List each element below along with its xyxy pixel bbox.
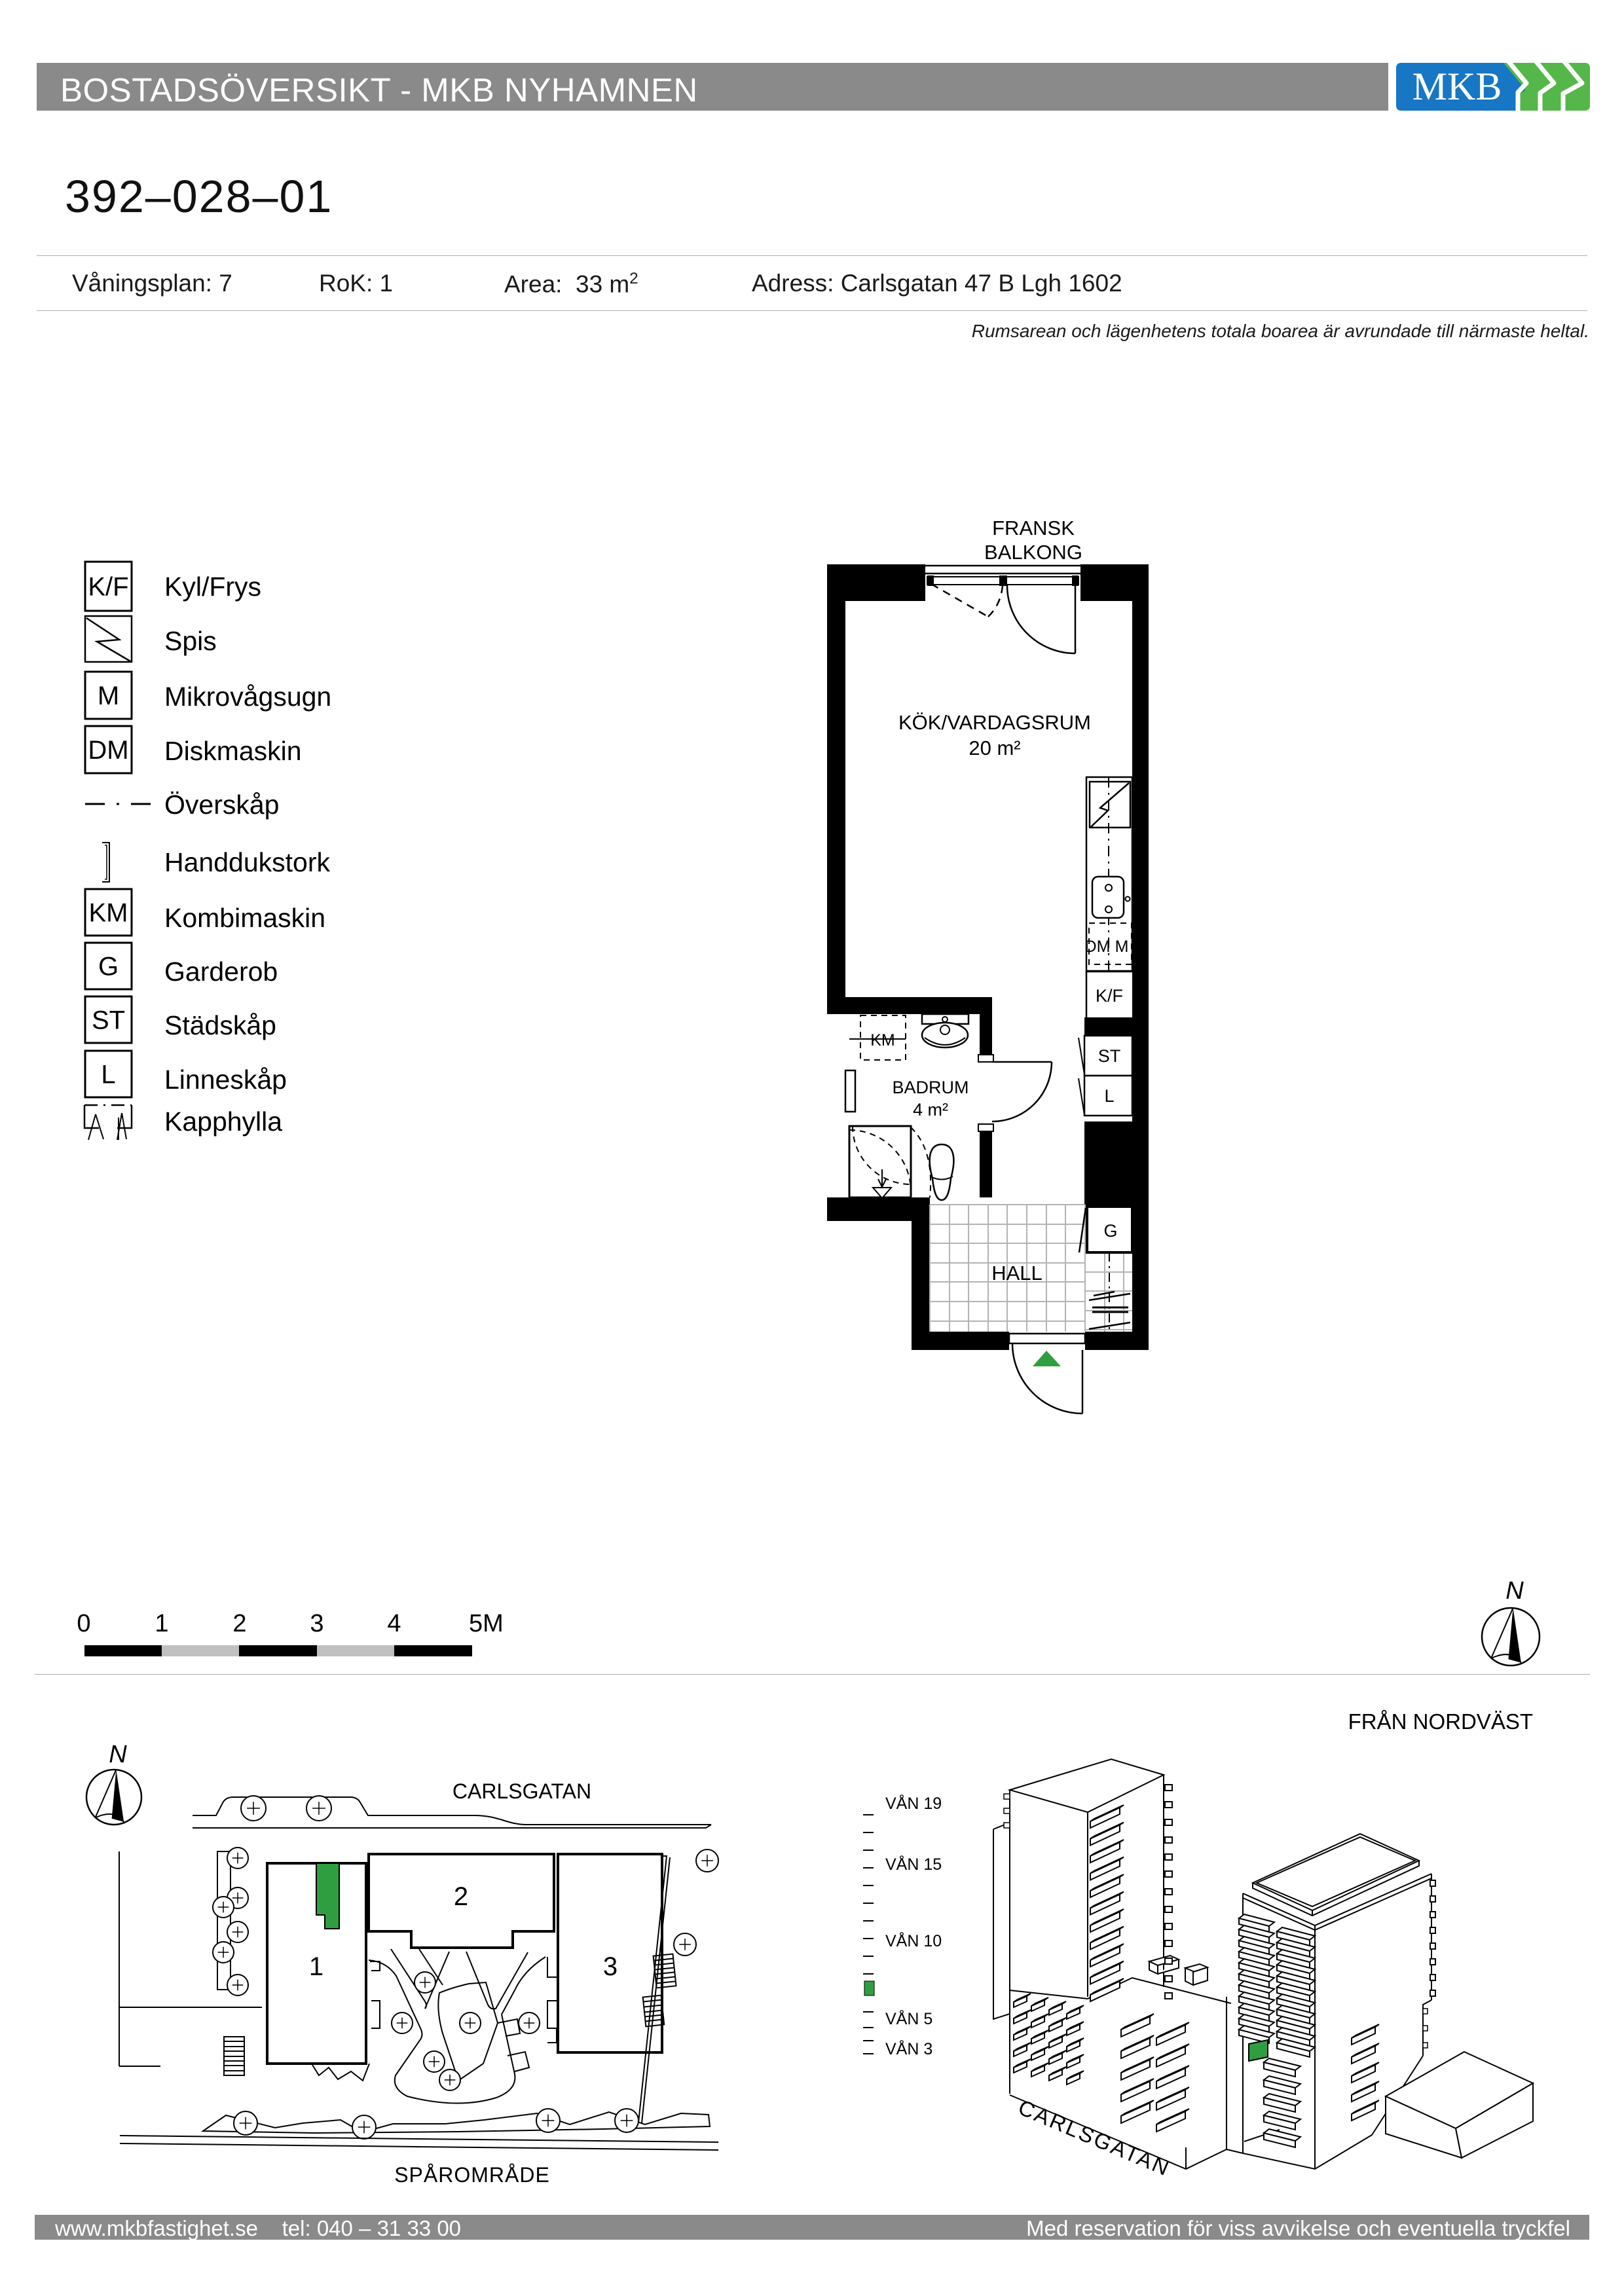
svg-text:20 m²: 20 m² xyxy=(969,737,1020,759)
svg-text:BADRUM: BADRUM xyxy=(892,1078,969,1097)
svg-text:5M: 5M xyxy=(469,1610,504,1637)
svg-text:FRANSK: FRANSK xyxy=(992,517,1075,539)
svg-text:Diskmaskin: Diskmaskin xyxy=(164,736,302,766)
svg-text:KM: KM xyxy=(870,1031,895,1049)
svg-text:N: N xyxy=(109,1741,127,1768)
svg-text:K/F: K/F xyxy=(1096,986,1123,1006)
svg-text:Överskåp: Överskåp xyxy=(164,790,279,820)
svg-text:KM: KM xyxy=(89,899,128,928)
svg-text:K/F: K/F xyxy=(88,573,128,602)
svg-text:VÅN 19: VÅN 19 xyxy=(885,1793,942,1813)
svg-text:G: G xyxy=(1103,1221,1117,1241)
svg-text:4: 4 xyxy=(387,1610,401,1637)
svg-text:CARLSGATAN: CARLSGATAN xyxy=(452,1779,591,1803)
svg-text:Handdukstork: Handdukstork xyxy=(164,847,330,877)
svg-text:Garderob: Garderob xyxy=(164,957,278,987)
svg-text:G: G xyxy=(98,953,119,981)
svg-text:Kapphylla: Kapphylla xyxy=(164,1106,282,1137)
svg-text:Kombimaskin: Kombimaskin xyxy=(164,903,325,933)
svg-text:HALL: HALL xyxy=(991,1262,1043,1285)
svg-text:FRÅN NORDVÄST: FRÅN NORDVÄST xyxy=(1348,1709,1533,1734)
svg-text:ST: ST xyxy=(1098,1046,1121,1066)
svg-text:VÅN 15: VÅN 15 xyxy=(885,1854,942,1874)
svg-text:2: 2 xyxy=(454,1882,468,1911)
svg-text:1: 1 xyxy=(309,1952,323,1981)
svg-text:Städskåp: Städskåp xyxy=(164,1010,276,1040)
svg-text:4 m²: 4 m² xyxy=(913,1100,948,1120)
svg-text:Spis: Spis xyxy=(164,626,217,656)
svg-text:0: 0 xyxy=(77,1610,90,1637)
svg-text:1: 1 xyxy=(155,1610,168,1637)
svg-text:SPÅROMRÅDE: SPÅROMRÅDE xyxy=(394,2163,550,2187)
svg-text:N: N xyxy=(1505,1577,1524,1605)
svg-text:Mikrovågsugn: Mikrovågsugn xyxy=(164,682,331,712)
svg-text:M: M xyxy=(1115,938,1129,956)
svg-text:ST: ST xyxy=(92,1006,125,1035)
svg-text:Kyl/Frys: Kyl/Frys xyxy=(164,572,261,602)
svg-text:KÖK/VARDAGSRUM: KÖK/VARDAGSRUM xyxy=(898,711,1091,734)
svg-text:3: 3 xyxy=(310,1610,323,1637)
svg-text:DM: DM xyxy=(88,736,128,765)
svg-text:L: L xyxy=(1104,1086,1114,1106)
svg-text:VÅN 5: VÅN 5 xyxy=(885,2009,932,2028)
svg-text:M: M xyxy=(98,682,119,710)
svg-text:DM: DM xyxy=(1085,938,1111,956)
svg-text:2: 2 xyxy=(232,1610,246,1637)
svg-text:3: 3 xyxy=(603,1952,618,1981)
svg-text:VÅN 10: VÅN 10 xyxy=(885,1931,942,1950)
svg-text:VÅN 3: VÅN 3 xyxy=(885,2039,932,2058)
svg-text:BALKONG: BALKONG xyxy=(984,541,1082,564)
svg-text:L: L xyxy=(101,1061,115,1089)
svg-text:Linneskåp: Linneskåp xyxy=(164,1065,287,1095)
